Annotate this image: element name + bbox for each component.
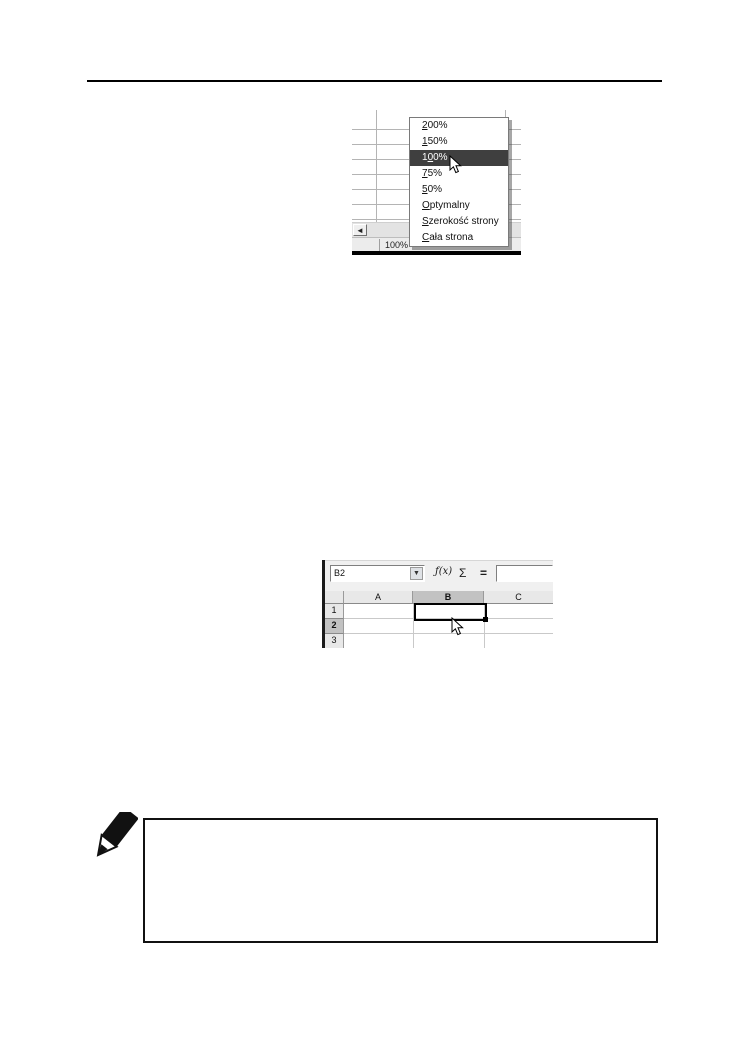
menu-item-150[interactable]: 150% bbox=[410, 134, 508, 150]
menu-item-200[interactable]: 200% bbox=[410, 118, 508, 134]
menu-item-page-width[interactable]: Szerokość strony bbox=[410, 214, 508, 230]
menu-item-optimal[interactable]: Optymalny bbox=[410, 198, 508, 214]
formula-bar: B2 ▼ ƒ(x) Σ = bbox=[325, 560, 553, 591]
name-box-dropdown-icon[interactable]: ▼ bbox=[410, 567, 423, 580]
equals-icon[interactable]: = bbox=[480, 566, 487, 580]
sheet-area: A B C 1 2 3 bbox=[325, 591, 553, 648]
formula-input[interactable] bbox=[496, 565, 553, 582]
mouse-cursor-icon bbox=[451, 617, 464, 636]
note-box bbox=[143, 818, 658, 943]
calc-formulabar-screenshot: B2 ▼ ƒ(x) Σ = A B C 1 2 3 bbox=[322, 560, 553, 648]
name-box-input[interactable]: B2 ▼ bbox=[330, 565, 425, 582]
header-rule bbox=[87, 80, 662, 82]
column-header-a[interactable]: A bbox=[344, 591, 413, 604]
column-header-c[interactable]: C bbox=[484, 591, 553, 604]
cell-grid[interactable] bbox=[344, 604, 553, 648]
screenshot-bottom-edge bbox=[352, 251, 521, 255]
grid-vline bbox=[376, 110, 377, 223]
row-header-2-selected[interactable]: 2 bbox=[325, 619, 344, 634]
fill-handle[interactable] bbox=[483, 617, 488, 622]
row-header-1[interactable]: 1 bbox=[325, 604, 344, 619]
function-wizard-icon[interactable]: ƒ(x) bbox=[435, 566, 452, 577]
document-page: ◄ 100% 200% 150% 100% 75% 50% Optymalny … bbox=[0, 0, 749, 1064]
row-header-3[interactable]: 3 bbox=[325, 634, 344, 648]
status-zoom-value[interactable]: 100% bbox=[385, 240, 408, 250]
menu-item-whole-page[interactable]: Cała strona bbox=[410, 230, 508, 246]
name-box-value: B2 bbox=[334, 568, 345, 578]
pencil-note-icon bbox=[86, 812, 138, 870]
menu-item-50[interactable]: 50% bbox=[410, 182, 508, 198]
status-separator bbox=[379, 239, 380, 251]
mouse-cursor-icon bbox=[449, 155, 462, 174]
select-all-corner[interactable] bbox=[325, 591, 344, 604]
scroll-left-button[interactable]: ◄ bbox=[353, 224, 367, 236]
sum-icon[interactable]: Σ bbox=[459, 566, 466, 580]
zoom-menu-screenshot: ◄ 100% 200% 150% 100% 75% 50% Optymalny … bbox=[352, 110, 521, 255]
zoom-context-menu: 200% 150% 100% 75% 50% Optymalny Szeroko… bbox=[409, 117, 509, 247]
